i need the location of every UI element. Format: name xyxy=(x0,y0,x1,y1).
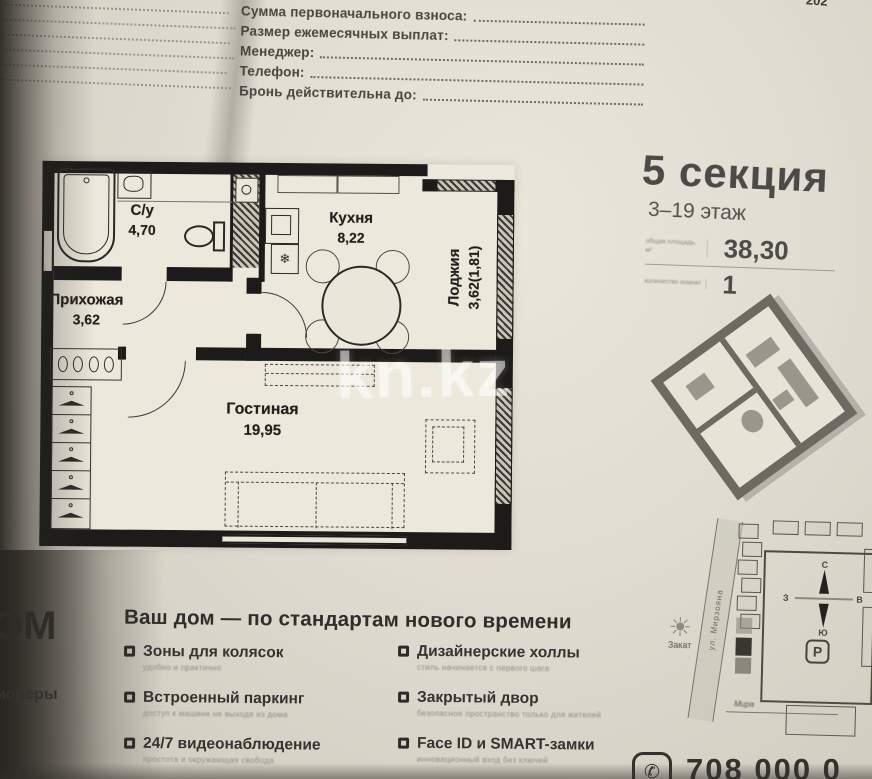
site-plan: ул. Мирзояна С В Ю З P xyxy=(637,515,872,749)
room-label-hallway: Прихожая 3,62 xyxy=(36,290,136,329)
kitchen-cabinet xyxy=(337,176,399,195)
floor-plan: С/у 4,70 ❄ Кухня 8,22 Лоджия xyxy=(34,148,524,556)
wall-pier xyxy=(422,179,437,191)
wardrobe xyxy=(50,386,91,529)
blank-line xyxy=(3,19,235,30)
features-title: Ваш дом — по стандартам нового времени xyxy=(124,606,572,635)
kitchen-cabinet xyxy=(277,175,337,194)
blank-line xyxy=(2,64,227,75)
wall-pier xyxy=(495,180,514,192)
checkbox-icon xyxy=(398,738,409,749)
feature-title: 24/7 видеонаблюдение xyxy=(143,735,321,755)
room-label-loggia: Лоджия 3,62(1,81) xyxy=(428,217,499,338)
hanger-icon xyxy=(52,443,90,471)
wall-hall-south xyxy=(196,347,246,360)
kitchen-sink-icon xyxy=(265,208,299,244)
checkbox-icon xyxy=(398,646,409,657)
blank-line xyxy=(3,34,230,45)
mini-3d-plan xyxy=(652,295,852,507)
partial-word-bottom: ионеры xyxy=(0,686,58,704)
toilet-icon xyxy=(184,225,214,247)
partial-word-top: ОМ xyxy=(0,604,56,649)
wall-bath-south xyxy=(167,267,232,282)
form-blank-line xyxy=(473,10,645,26)
hanger-icon xyxy=(51,499,89,526)
feature-subtitle: доступ к машине не выходя из дома xyxy=(143,709,304,720)
table-top xyxy=(321,265,402,346)
form-label: Бронь действительна до: xyxy=(239,83,417,102)
feature-subtitle: безопасное пространство только для жител… xyxy=(417,709,602,720)
form-blank-line xyxy=(455,29,645,45)
stat-label: общая площадь, м² xyxy=(645,238,708,256)
feature-item: 24/7 видеонаблюдение простота и окружающ… xyxy=(124,735,394,767)
blank-line xyxy=(2,49,234,60)
hanger-icon xyxy=(52,387,90,415)
armchair xyxy=(425,419,475,473)
blank-line xyxy=(4,4,229,15)
hanger-icon xyxy=(52,415,90,443)
building-unit xyxy=(735,657,751,673)
feature-title: Зоны для колясок xyxy=(143,643,284,662)
booking-form: Сумма первоначального взноса: Размер еже… xyxy=(239,0,645,109)
adjacent-page-blank-lines xyxy=(0,4,236,119)
sun-icon: ☀ xyxy=(650,613,711,641)
washer-icon xyxy=(235,178,258,203)
feature-title: Face ID и SMART-замки xyxy=(417,735,595,755)
form-label: Менеджер: xyxy=(240,43,315,60)
highlighted-unit xyxy=(735,637,751,655)
feature-item: Закрытый двор безопасное пространство то… xyxy=(398,689,668,721)
floors-range: 3–19 этаж xyxy=(648,198,747,226)
checkbox-icon xyxy=(124,692,135,703)
window-left xyxy=(42,231,54,271)
phone-icon: ✆ xyxy=(632,752,672,779)
corner-text-fragment: 202 xyxy=(806,0,829,9)
wall-bath-south xyxy=(54,266,122,281)
phone-digits: 708 000 0 xyxy=(686,752,842,779)
phone-row: ✆ 708 000 0 xyxy=(632,752,842,779)
stat-value-area: 38,30 xyxy=(707,233,789,267)
checkbox-icon xyxy=(124,738,135,749)
closet xyxy=(50,348,122,381)
checkbox-icon xyxy=(124,646,135,657)
room-label-bathroom: С/у 4,70 xyxy=(107,200,177,238)
feature-item: Встроенный паркинг доступ к машине не вы… xyxy=(124,689,394,721)
feature-item: Зоны для колясок удобно и практично xyxy=(124,643,394,675)
hanger-icon xyxy=(52,471,90,499)
snowflake-icon: ❄ xyxy=(271,244,299,274)
site-note: Мира xyxy=(734,699,754,709)
section-title: 5 секция xyxy=(641,146,830,202)
toilet-tank xyxy=(213,221,225,251)
feature-item: Face ID и SMART-замки инновационный вход… xyxy=(398,735,668,767)
building-unit xyxy=(736,617,752,633)
dining-table xyxy=(313,257,410,354)
building-cells xyxy=(643,515,872,521)
feature-title: Закрытый двор xyxy=(417,689,602,709)
room-label-kitchen: Кухня 8,22 xyxy=(305,208,397,246)
door-frame xyxy=(247,278,262,294)
feature-title: Дизайнерские холлы xyxy=(417,643,580,663)
compass-icon: С В Ю З xyxy=(788,561,860,637)
feature-item: Дизайнерские холлы стиль начинается с пе… xyxy=(398,643,668,675)
blank-line xyxy=(1,79,231,90)
tv-stand xyxy=(265,364,375,387)
feature-title: Встроенный паркинг xyxy=(143,689,304,709)
checkbox-icon xyxy=(398,692,409,703)
feature-subtitle: инновационный вход без ключей xyxy=(417,755,595,766)
feature-subtitle: простота и окружающая свобода xyxy=(143,755,321,766)
parking-icon: P xyxy=(805,639,830,664)
stat-label: количество комнат xyxy=(644,278,706,288)
form-label: Телефон: xyxy=(239,63,304,79)
form-blank-line xyxy=(423,89,643,106)
brochure-photo: Сумма первоначального взноса: Размер еже… xyxy=(0,0,872,779)
feature-subtitle: стиль начинается с первого шага xyxy=(417,663,580,674)
window-bottom xyxy=(222,535,406,546)
feature-subtitle: удобно и практично xyxy=(143,663,284,673)
room-label-living: Гостиная 19,95 xyxy=(187,399,337,441)
sink-icon xyxy=(117,171,151,199)
sofa xyxy=(224,472,404,529)
living-window-right xyxy=(495,387,513,505)
